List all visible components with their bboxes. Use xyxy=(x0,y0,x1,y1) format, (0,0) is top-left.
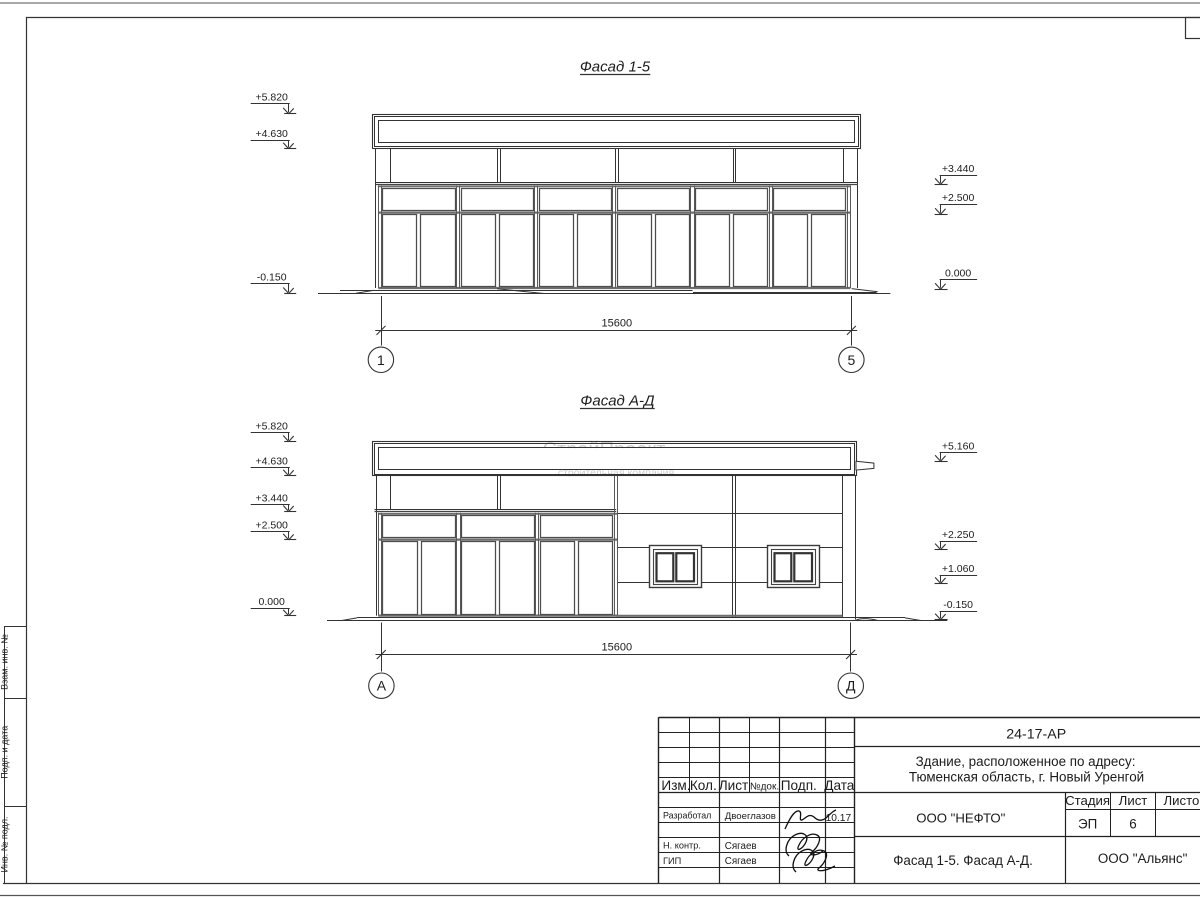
svg-text:Фасад 1-5. Фасад А-Д.: Фасад 1-5. Фасад А-Д. xyxy=(893,853,1033,868)
svg-text:+2.500: +2.500 xyxy=(942,192,975,204)
svg-text:0.000: 0.000 xyxy=(945,268,971,280)
svg-text:Подп.: Подп. xyxy=(781,778,817,793)
svg-text:+1.060: +1.060 xyxy=(942,563,975,575)
svg-text:15600: 15600 xyxy=(602,318,633,330)
svg-text:-0.150: -0.150 xyxy=(257,272,287,284)
svg-text:0.000: 0.000 xyxy=(259,596,285,608)
svg-text:+2.250: +2.250 xyxy=(942,529,975,541)
svg-text:+2.500: +2.500 xyxy=(255,519,288,531)
svg-text:1: 1 xyxy=(377,352,385,368)
svg-text:Инв. № подл.: Инв. № подл. xyxy=(0,816,10,872)
svg-text:15600: 15600 xyxy=(602,642,633,654)
svg-text:Сягаев: Сягаев xyxy=(725,841,757,852)
svg-text:+5.820: +5.820 xyxy=(255,420,288,432)
svg-text:+3.440: +3.440 xyxy=(255,492,288,504)
svg-text:ЭП: ЭП xyxy=(1078,816,1097,831)
svg-text:Н. контр.: Н. контр. xyxy=(663,841,701,851)
svg-text:Взам. инв. №: Взам. инв. № xyxy=(0,634,10,690)
svg-text:Сягаев: Сягаев xyxy=(725,856,757,867)
svg-text:ООО "Альянс": ООО "Альянс" xyxy=(1098,851,1188,866)
svg-text:Дата: Дата xyxy=(824,778,855,793)
svg-text:+5.160: +5.160 xyxy=(942,441,975,453)
svg-text:Разработал: Разработал xyxy=(663,811,711,821)
svg-text:Двоеглазов: Двоеглазов xyxy=(725,811,776,822)
svg-text:24-17-АР: 24-17-АР xyxy=(1006,726,1066,742)
svg-text:Изм.: Изм. xyxy=(661,778,690,793)
svg-text:Д: Д xyxy=(846,678,856,694)
svg-text:ГИП: ГИП xyxy=(663,856,681,866)
svg-text:Подп. и дата: Подп. и дата xyxy=(0,726,10,779)
svg-text:+4.630: +4.630 xyxy=(255,128,288,140)
svg-text:Фасад А-Д: Фасад А-Д xyxy=(580,393,655,410)
svg-text:5: 5 xyxy=(848,352,856,368)
svg-text:Листов: Листов xyxy=(1164,793,1200,808)
svg-text:Кол.: Кол. xyxy=(690,778,717,793)
svg-text:Тюменская область, г. Новый Ур: Тюменская область, г. Новый Уренгой xyxy=(909,769,1144,784)
svg-text:А: А xyxy=(377,678,387,694)
svg-text:Лист: Лист xyxy=(1119,793,1148,808)
svg-text:+5.820: +5.820 xyxy=(255,92,288,104)
svg-text:Лист: Лист xyxy=(719,778,749,793)
svg-text:Здание, расположенное по адрес: Здание, расположенное по адресу: xyxy=(916,754,1136,769)
svg-text:+4.630: +4.630 xyxy=(255,456,288,468)
svg-text:№док.: №док. xyxy=(750,781,779,792)
svg-text:6: 6 xyxy=(1129,816,1136,831)
svg-text:ООО "НЕФТО": ООО "НЕФТО" xyxy=(916,810,1005,825)
svg-text:-0.150: -0.150 xyxy=(943,599,973,611)
svg-text:Стадия: Стадия xyxy=(1065,793,1110,808)
svg-text:+3.440: +3.440 xyxy=(942,163,975,175)
svg-text:Фасад 1-5: Фасад 1-5 xyxy=(580,59,651,76)
